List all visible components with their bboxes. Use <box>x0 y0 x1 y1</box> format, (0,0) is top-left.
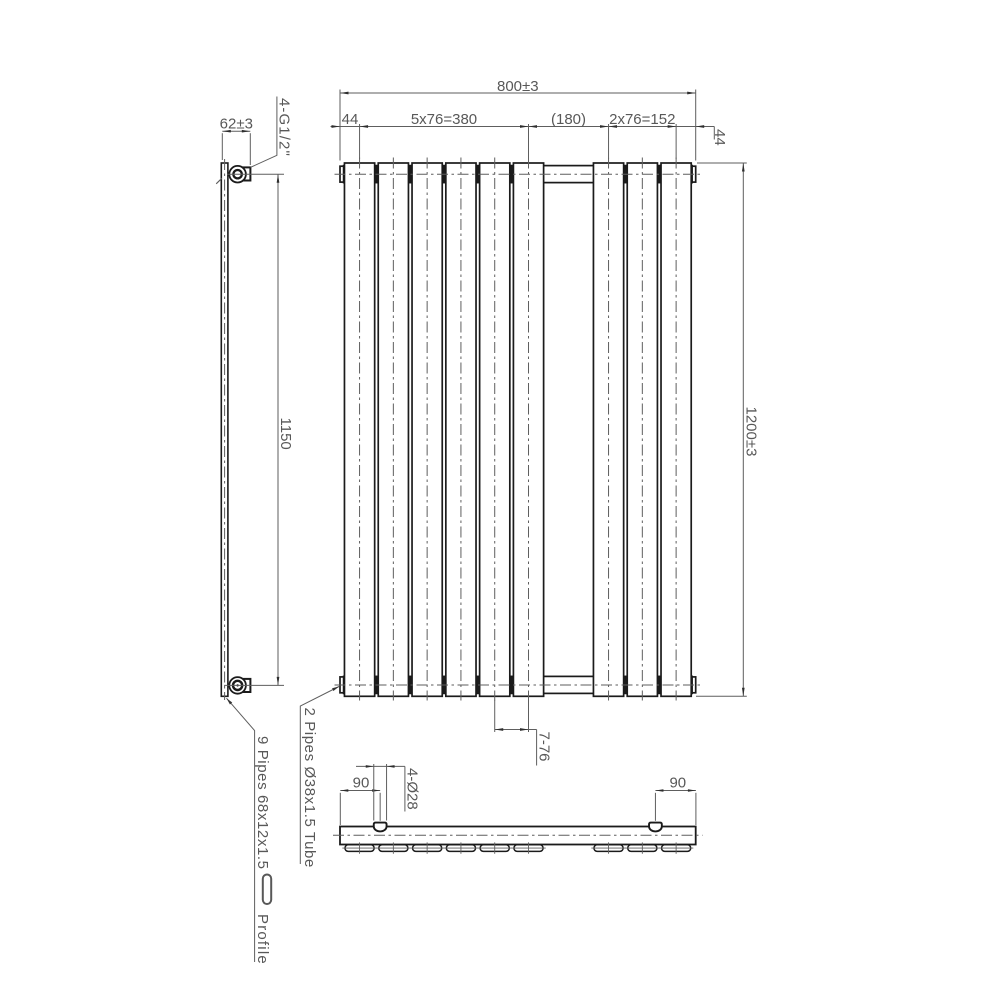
svg-text:44: 44 <box>342 111 359 128</box>
svg-text:7-76: 7-76 <box>535 732 552 762</box>
svg-text:44: 44 <box>711 129 728 146</box>
svg-text:1150: 1150 <box>277 418 294 450</box>
svg-text:1200±3: 1200±3 <box>743 407 760 457</box>
svg-text:90: 90 <box>353 774 370 791</box>
svg-text:90: 90 <box>669 774 686 791</box>
svg-text:62±3: 62±3 <box>220 116 253 133</box>
svg-text:2x76=152: 2x76=152 <box>609 111 675 128</box>
svg-text:4-G1/2": 4-G1/2" <box>275 98 292 157</box>
svg-text:Profile: Profile <box>254 914 271 965</box>
svg-text:(180): (180) <box>551 111 586 128</box>
svg-text:800±3: 800±3 <box>497 78 539 95</box>
svg-text:4-Ø28: 4-Ø28 <box>404 768 421 810</box>
svg-text:9 Pipes 68x12x1.5: 9 Pipes 68x12x1.5 <box>254 736 271 870</box>
svg-text:5x76=380: 5x76=380 <box>411 111 477 128</box>
svg-text:2 Pipes Ø38x1.5 Tube: 2 Pipes Ø38x1.5 Tube <box>301 708 318 868</box>
